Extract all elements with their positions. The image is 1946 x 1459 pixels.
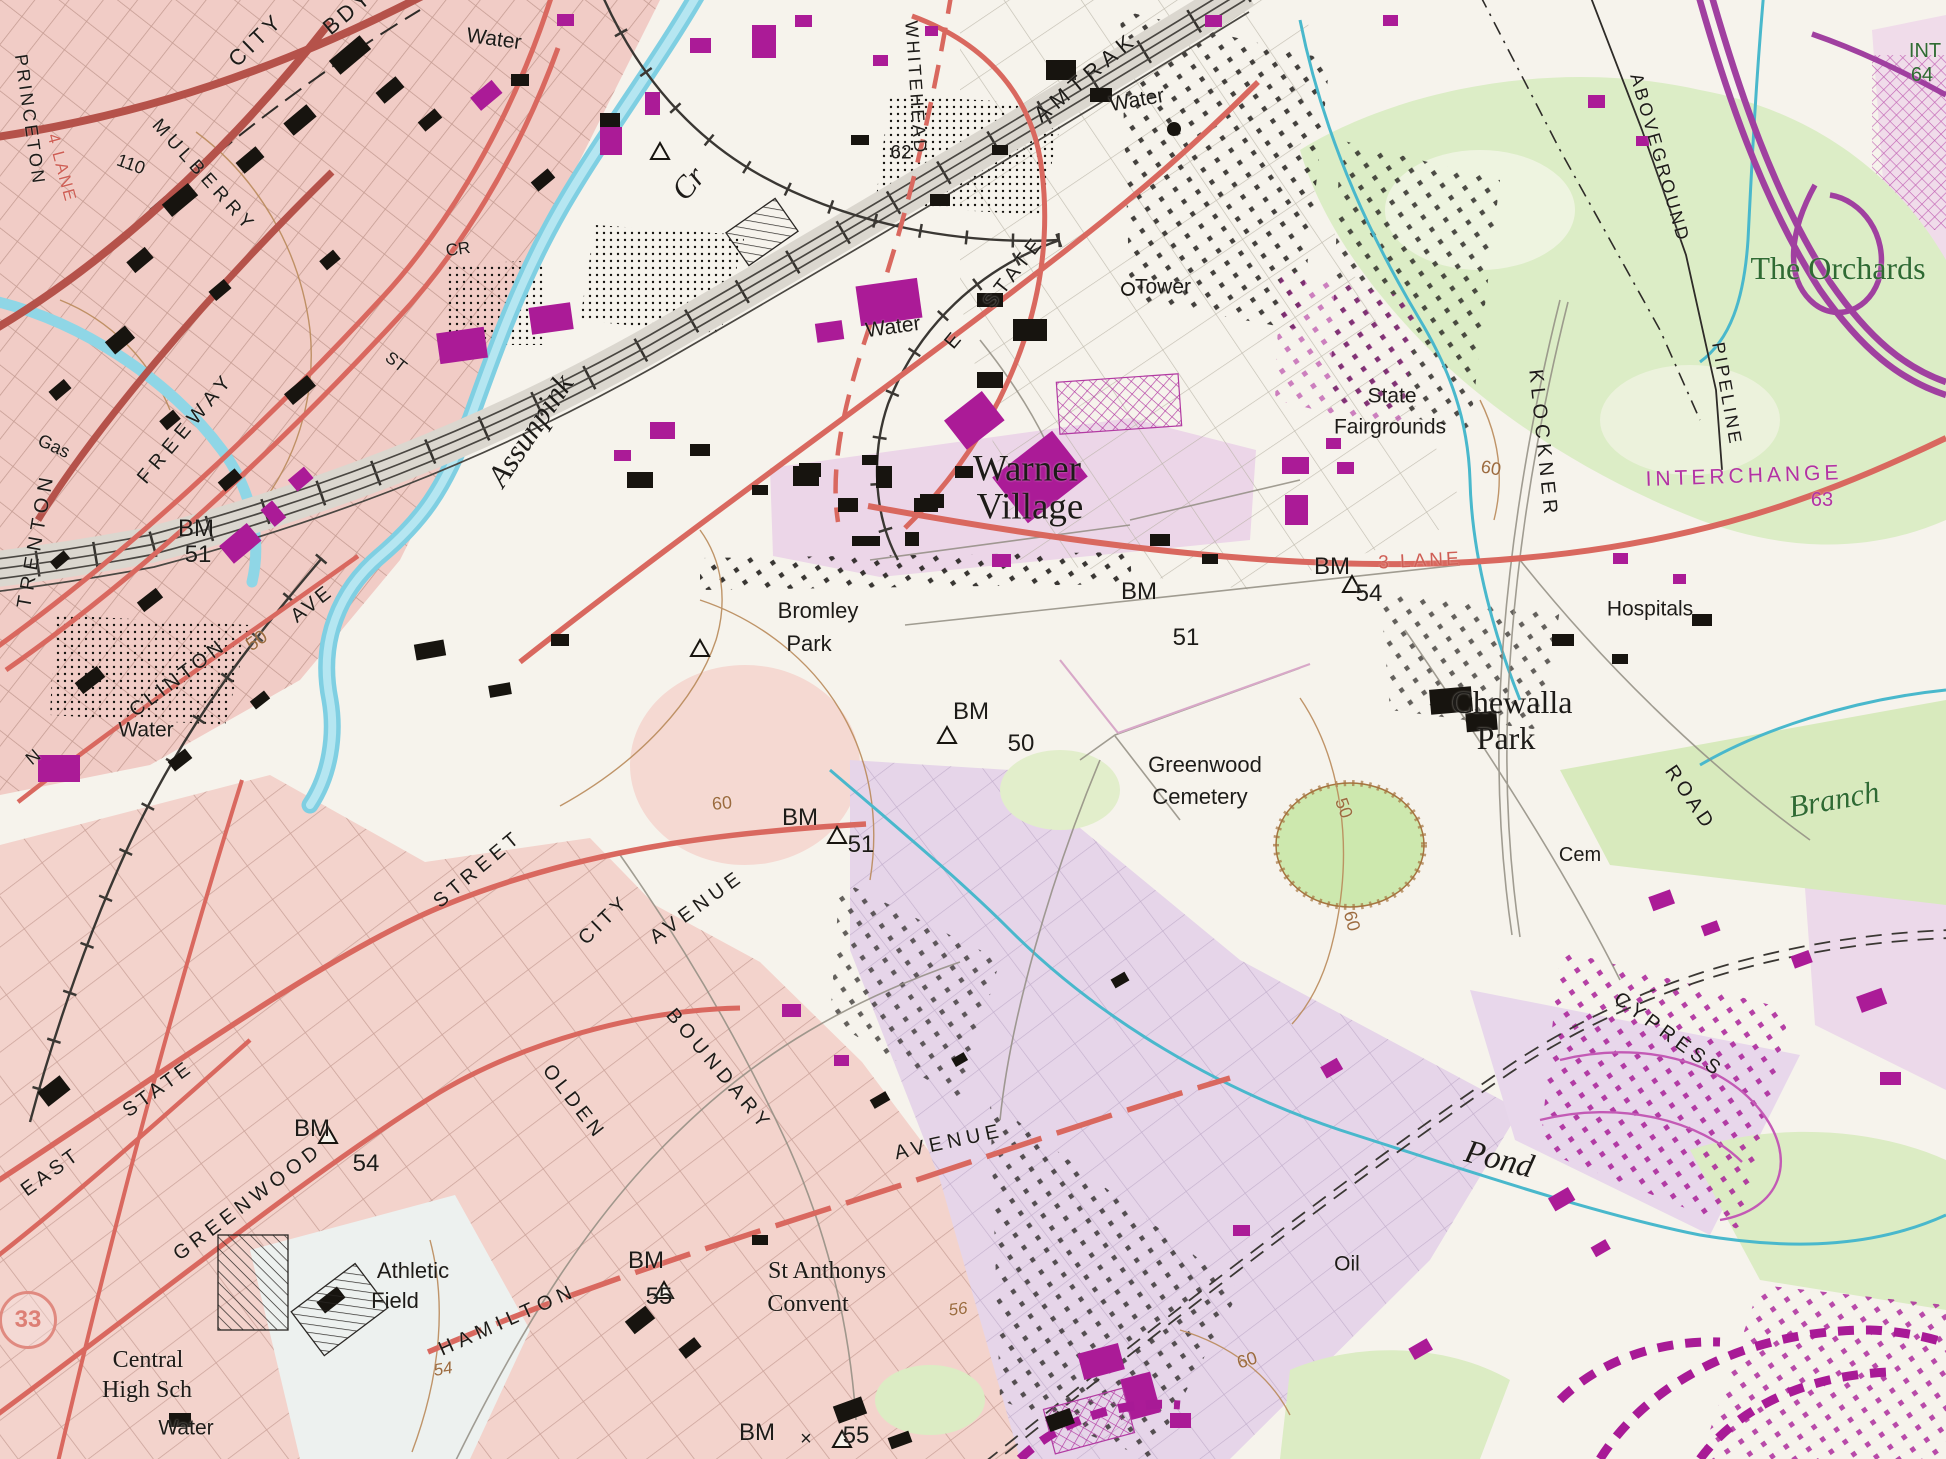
- map-label-contour-60-cem: 60: [1341, 909, 1364, 933]
- map-label-bm-left-51: 51: [185, 543, 212, 567]
- map-label-chewalla-park-2: Park: [1477, 722, 1536, 754]
- map-label-hamilton-avenue: AVENUE: [893, 1121, 1006, 1164]
- map-label-bm-left: BM: [178, 517, 214, 541]
- map-label-athletic-field-2: Field: [371, 1290, 419, 1312]
- map-label-clinton: CLINTON: [126, 635, 230, 720]
- map-label-greenwood-cemetery-1: Greenwood: [1148, 754, 1262, 776]
- map-label-st-anthonys-2: Convent: [767, 1292, 848, 1316]
- map-label-four-lane: 4 LANE: [45, 132, 80, 205]
- map-label-pond: Pond: [1461, 1136, 1537, 1185]
- map-label-city-avenue-2: AVENUE: [646, 866, 747, 947]
- map-label-contour-56-italic: 56: [947, 1299, 968, 1318]
- map-label-contour-50-cem: 50: [1332, 796, 1356, 821]
- map-label-cem: Cem: [1559, 845, 1601, 865]
- map-label-bm-54-num: 54: [1356, 582, 1383, 606]
- map-label-bm-55-bottom-num: 55: [843, 1424, 870, 1448]
- map-label-bm-50: BM: [953, 700, 989, 724]
- map-label-central-high-2: High Sch: [102, 1378, 192, 1402]
- map-label-interchange: INTERCHANGE: [1645, 462, 1842, 490]
- map-label-contour-54-italic: 54: [432, 1359, 454, 1379]
- map-label-st-abbrev: ST: [382, 349, 410, 376]
- map-label-n-clinton: N: [22, 746, 44, 768]
- map-label-bromley-park-2: Park: [786, 633, 831, 655]
- map-label-warner-village-2: Village: [977, 489, 1084, 526]
- map-label-city-bdy-2: BDY: [319, 0, 377, 39]
- map-label-assunpink-cr: Cr: [666, 160, 711, 205]
- map-label-oil: Oil: [1334, 1254, 1360, 1275]
- map-label-bm-55-bottom-x: ×: [800, 1429, 812, 1449]
- map-label-greenwood-ave: GREENWOOD: [170, 1140, 326, 1265]
- map-label-athletic-field-1: Athletic: [377, 1260, 449, 1282]
- map-label-int-64-1: INT: [1909, 41, 1941, 61]
- map-label-pipeline: PIPELINE: [1709, 341, 1745, 448]
- map-label-water-estate: Water: [864, 313, 922, 341]
- map-label-clinton-ave: AVE: [287, 581, 337, 626]
- map-label-three-lane: 3 LANE: [1378, 549, 1462, 572]
- map-label-contour-50-clinton: 50: [243, 627, 271, 655]
- map-label-mulberry: MULBERRY: [148, 116, 259, 237]
- map-label-freeway: FREEWAY: [134, 368, 238, 487]
- map-label-interchange-63: 63: [1811, 490, 1833, 510]
- map-label-contour-62: 62: [890, 144, 911, 163]
- map-label-bm-51-center: BM: [782, 806, 818, 830]
- map-label-e-state: STATE: [979, 232, 1048, 312]
- map-label-greenwood-cemetery-2: Cemetery: [1152, 786, 1247, 808]
- map-label-water-top: Water: [465, 25, 523, 53]
- map-label-bm-55-num: 55: [646, 1285, 673, 1309]
- map-label-east-state-2: STATE: [119, 1057, 197, 1121]
- map-label-tower: Tower: [1135, 277, 1191, 298]
- map-label-contour-60-klockner: 60: [1480, 457, 1503, 478]
- map-label-bm-51-center-num: 51: [848, 833, 875, 857]
- map-label-branch: Branch: [1786, 776, 1881, 822]
- map-label-water-bottom: Water: [158, 1418, 213, 1439]
- map-label-hospitals: Hospitals: [1607, 599, 1693, 620]
- map-label-cr-abbrev: CR: [445, 239, 472, 259]
- map-label-bromley-park-1: Bromley: [778, 600, 859, 622]
- map-label-bm-55: BM: [628, 1249, 664, 1273]
- map-canvas: WaterCITYBDYPRINCETON4 LANE110MULBERRYCR…: [0, 0, 1946, 1459]
- route-33-shield: 33: [0, 1291, 57, 1349]
- map-label-int-64-2: 64: [1911, 65, 1933, 85]
- map-label-bm-55-bottom: BM: [739, 1421, 775, 1445]
- map-label-central-high-1: Central: [113, 1348, 184, 1372]
- map-label-bm-54-bottom: BM: [294, 1117, 330, 1141]
- map-label-city-bdy-1: CITY: [225, 9, 288, 71]
- map-label-city-avenue-1: CITY: [575, 891, 633, 948]
- map-label-bm-warner: BM: [1121, 580, 1157, 604]
- map-label-boundary: BOUNDARY: [662, 1005, 776, 1135]
- map-label-contour-60-bottom: 60: [1235, 1348, 1260, 1371]
- map-label-olden: OLDEN: [539, 1061, 609, 1143]
- map-label-gas: Gas: [35, 431, 73, 461]
- map-label-road: ROAD: [1661, 762, 1719, 834]
- map-label-water-left: Water: [118, 720, 173, 741]
- map-label-bm-50-num: 50: [1008, 732, 1035, 756]
- map-label-whitehead: WHITEHEAD: [902, 20, 929, 156]
- map-label-state-fairgrounds-2: Fairgrounds: [1334, 417, 1446, 438]
- map-label-bm-warner-51: 51: [1173, 626, 1200, 650]
- map-label-hamilton: HAMILTON: [436, 1280, 581, 1359]
- map-label-assunpink: Assunpink: [482, 369, 579, 492]
- map-label-east-state-1: EAST: [18, 1144, 85, 1200]
- map-label-aboveground: ABOVEGROUND: [1627, 71, 1693, 244]
- map-label-state-fairgrounds-1: State: [1367, 386, 1416, 407]
- map-label-trenton: TRENTON: [14, 470, 58, 610]
- map-label-cypress: CYPRESS: [1610, 989, 1727, 1082]
- map-label-chewalla-park-1: Chewalla: [1452, 686, 1573, 718]
- map-label-the-orchards: The Orchards: [1750, 252, 1925, 284]
- map-label-bm-54: BM: [1314, 555, 1350, 579]
- map-label-e-state-e: E: [941, 329, 965, 352]
- map-label-street: STREET: [430, 826, 526, 911]
- map-label-princeton: PRINCETON: [12, 53, 48, 187]
- map-label-klockner: KLOCKNER: [1525, 368, 1561, 519]
- map-label-st-anthonys-1: St Anthonys: [768, 1259, 886, 1283]
- map-label-bm-54-bottom-num: 54: [353, 1152, 380, 1176]
- route-33-number: 33: [15, 1306, 42, 1334]
- map-label-contour-110: 110: [114, 151, 147, 178]
- map-label-contour-60-center: 60: [711, 793, 733, 813]
- map-labels-layer: WaterCITYBDYPRINCETON4 LANE110MULBERRYCR…: [0, 0, 1946, 1459]
- map-label-water-amtrak: Water: [1108, 85, 1166, 115]
- map-label-warner-village-1: Warner: [973, 451, 1081, 488]
